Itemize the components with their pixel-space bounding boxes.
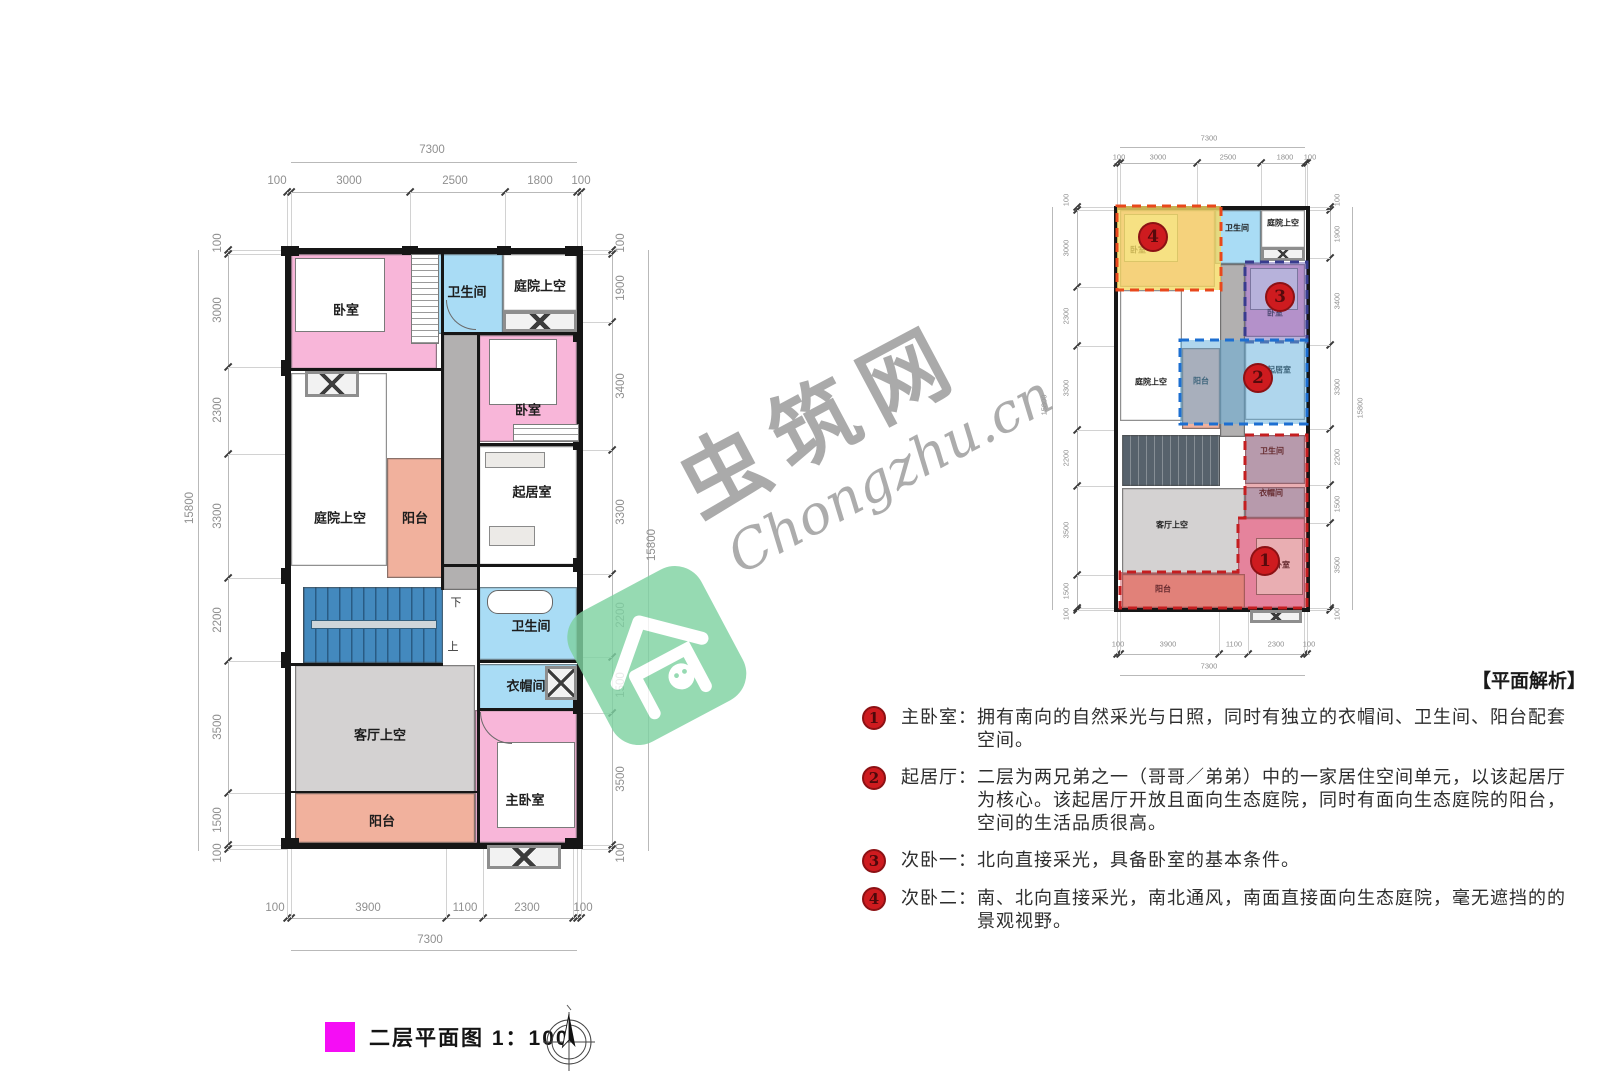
- stair-direction-label: 上: [448, 638, 459, 654]
- analysis-item-text: 次卧二：南、北向直接采光，南北通风，南面直接面向生态庭院，毫无遮挡的的景观视野。: [901, 887, 1582, 933]
- stair-direction-label: 下: [451, 594, 462, 610]
- dimension-line: [291, 950, 577, 951]
- room-corridor: [443, 334, 479, 590]
- extension-line: [1248, 610, 1249, 654]
- room-m-courtyard-n: [1261, 210, 1305, 248]
- dimension-label: 1900: [1333, 226, 1342, 243]
- wall-segment: [281, 652, 291, 668]
- extension-line: [1117, 163, 1118, 207]
- dimension-label: 3300: [212, 503, 224, 529]
- dimension-label: 2300: [1062, 308, 1071, 325]
- dimension-label: 2200: [1333, 449, 1342, 466]
- room-m-courtyard-w: [1120, 290, 1182, 421]
- dimension-line: [228, 250, 229, 851]
- dimension-label: 1500: [1062, 583, 1071, 600]
- analysis-item-number-badge: 4: [862, 887, 886, 911]
- wall-segment: [479, 443, 583, 446]
- zone-marker-1: 1: [1250, 546, 1280, 576]
- wall-segment: [443, 332, 583, 335]
- dimension-label: 7300: [417, 934, 443, 946]
- legend-color-swatch: [325, 1022, 355, 1052]
- extension-line: [291, 192, 292, 250]
- wall-segment: [479, 660, 583, 663]
- dimension-label: 7300: [419, 144, 445, 156]
- room-courtyard-w: [291, 373, 387, 566]
- room-label-m-living-above: 客厅上空: [1156, 520, 1188, 531]
- dimension-line: [1352, 207, 1353, 610]
- dimension-label: 100: [212, 843, 224, 862]
- tub-symbol: [487, 590, 553, 614]
- dimension-label: 100: [615, 843, 627, 862]
- dimension-line: [1114, 654, 1310, 655]
- dimension-line: [1330, 207, 1331, 610]
- dimension-line: [612, 250, 613, 851]
- dimension-label: 100: [1112, 640, 1125, 649]
- wall-segment: [479, 708, 583, 711]
- wall-segment: [565, 246, 583, 256]
- room-label-m-bath-n: 卫生间: [1225, 223, 1249, 234]
- dimension-label: 3500: [212, 714, 224, 740]
- watermark-brand-en: Chongzhu.cn: [708, 363, 1063, 591]
- dimension-label: 3400: [1333, 293, 1342, 310]
- extension-line: [1261, 163, 1262, 207]
- legend-plan-name: 二层平面图: [369, 1027, 484, 1050]
- room-m-living-above: [1122, 488, 1245, 574]
- extension-line: [1219, 610, 1220, 654]
- analysis-item-text: 起居厅：二层为两兄弟之一（哥哥／弟弟）中的一家居住空间单元，以该起居厅为核心。该…: [901, 766, 1582, 835]
- dimension-label: 100: [615, 233, 627, 252]
- dimension-label: 3000: [1150, 153, 1167, 162]
- dimension-label: 3500: [1062, 522, 1071, 539]
- analysis-item-3: 3次卧一：北向直接采光，具备卧室的基本条件。: [862, 849, 1582, 873]
- dimension-label: 1500: [615, 672, 627, 698]
- extension-line: [581, 713, 612, 714]
- room-label-balcony-s: 阳台: [369, 811, 395, 830]
- extension-line: [1077, 608, 1114, 609]
- extension-line: [287, 192, 288, 250]
- analysis-header: 【平面解析】: [1472, 666, 1600, 693]
- room-label-m-balcony-middle: 阳台: [1193, 376, 1209, 387]
- dimension-label: 3300: [1062, 380, 1071, 397]
- extension-line: [228, 367, 287, 368]
- dimension-label: 100: [267, 175, 286, 187]
- room-m-corridor: [1220, 264, 1245, 437]
- xbox-symbol: [487, 845, 561, 869]
- hatch-symbol: [513, 424, 579, 442]
- extension-line: [1077, 346, 1114, 347]
- dimension-label: 3000: [336, 175, 362, 187]
- xbox-symbol: [1250, 610, 1302, 623]
- dimension-line: [1077, 207, 1078, 610]
- watermark-brand-cn: 虫筑网: [665, 281, 1032, 534]
- dimension-label: 1100: [453, 902, 478, 914]
- extension-line: [581, 250, 612, 251]
- analysis-item-number-badge: 3: [862, 849, 886, 873]
- room-label-bath-s: 卫生间: [511, 616, 550, 635]
- room-label-m-courtyard-n: 庭院上空: [1267, 218, 1299, 229]
- analysis-item-number-badge: 1: [862, 706, 886, 730]
- zone-marker-4: 4: [1138, 222, 1168, 252]
- extension-line: [581, 254, 612, 255]
- dimension-label: 100: [212, 233, 224, 252]
- dimension-label: 15800: [1040, 395, 1049, 416]
- xbox-symbol: [1261, 247, 1305, 261]
- dimension-label: 3000: [1062, 240, 1071, 257]
- extension-line: [577, 192, 578, 250]
- dimension-label: 2300: [212, 397, 224, 423]
- dimension-label: 100: [1304, 153, 1317, 162]
- dimension-line: [291, 162, 577, 163]
- dimension-label: 2500: [442, 175, 468, 187]
- dimension-label: 100: [265, 902, 284, 914]
- room-m-balcony-s: [1122, 574, 1245, 608]
- extension-line: [1305, 163, 1306, 207]
- room-m-balcony-middle: [1182, 348, 1220, 429]
- room-label-cloakroom: 衣帽间: [506, 676, 545, 695]
- xbox-symbol: [545, 666, 577, 700]
- dimension-label: 3400: [615, 373, 627, 399]
- analysis-item-text: 次卧一：北向直接采光，具备卧室的基本条件。: [901, 849, 1582, 873]
- dimension-label: 2500: [1220, 153, 1237, 162]
- wall-segment: [281, 360, 291, 376]
- room-m-stairs: [1122, 435, 1220, 486]
- extension-line: [287, 849, 288, 918]
- dimension-label: 15800: [184, 492, 196, 524]
- dimension-label: 1500: [212, 807, 224, 833]
- extension-line: [1197, 163, 1198, 207]
- wall-segment: [281, 568, 291, 584]
- extension-line: [228, 454, 287, 455]
- wall-segment: [291, 791, 477, 793]
- dimension-label: 100: [1333, 608, 1342, 621]
- extension-line: [228, 793, 287, 794]
- wall-segment: [443, 564, 583, 567]
- sofa-symbol: [489, 526, 535, 546]
- dimension-label: 2200: [212, 607, 224, 633]
- rail-symbol: [311, 620, 437, 629]
- room-label-master-bedroom: 主卧室: [505, 790, 544, 809]
- dimension-label: 1900: [615, 275, 627, 301]
- room-label-balcony-middle: 阳台: [402, 508, 428, 527]
- dimension-label: 100: [573, 902, 592, 914]
- room-label-courtyard-w: 庭院上空: [314, 508, 366, 527]
- wall-segment: [291, 663, 443, 666]
- room-label-m-bath-s: 卫生间: [1260, 446, 1284, 457]
- dimension-label: 1500: [1333, 496, 1342, 513]
- room-label-bedroom-nw: 卧室: [333, 300, 359, 319]
- room-label-m-balcony-s: 阳台: [1155, 584, 1171, 595]
- extension-line: [1120, 163, 1121, 207]
- room-label-m-courtyard-w: 庭院上空: [1135, 377, 1167, 388]
- dimension-label: 2200: [615, 602, 627, 628]
- wall-segment: [573, 558, 583, 572]
- dimension-label: 2200: [1062, 450, 1071, 467]
- dimension-label: 1100: [1226, 640, 1242, 649]
- extension-line: [1077, 207, 1114, 208]
- bed-symbol: [497, 742, 575, 828]
- zone-marker-2: 2: [1243, 363, 1273, 393]
- wall-segment: [477, 334, 480, 590]
- zone-marker-3: 3: [1265, 282, 1295, 312]
- wall-segment: [1114, 206, 1118, 612]
- extension-line: [228, 845, 287, 846]
- xbox-symbol: [503, 311, 577, 332]
- extension-line: [1077, 575, 1114, 576]
- analysis-item-2: 2起居厅：二层为两兄弟之一（哥哥／弟弟）中的一家居住空间单元，以该起居厅为核心。…: [862, 766, 1582, 835]
- extension-line: [410, 192, 411, 250]
- dimension-label: 3300: [615, 499, 627, 525]
- extension-line: [1310, 210, 1330, 211]
- extension-line: [1077, 430, 1114, 431]
- dimension-line: [198, 250, 199, 851]
- extension-line: [228, 661, 287, 662]
- room-label-living-room: 起居室: [512, 482, 551, 501]
- dimension-line: [287, 192, 581, 193]
- room-label-courtyard-n: 庭院上空: [514, 276, 566, 295]
- dimension-label: 100: [1062, 608, 1071, 621]
- room-label-living-above: 客厅上空: [354, 725, 406, 744]
- watermark-text: 虫筑网 Chongzhu.cn: [665, 281, 1063, 591]
- dimension-label: 100: [571, 175, 590, 187]
- dimension-label: 15800: [1356, 398, 1365, 419]
- extension-line: [1307, 163, 1308, 207]
- dimension-label: 3500: [615, 766, 627, 792]
- extension-line: [581, 192, 582, 250]
- wall-segment: [281, 246, 299, 256]
- hatch-symbol: [411, 254, 439, 344]
- dimension-label: 1800: [1277, 153, 1294, 162]
- dimension-label: 100: [1333, 194, 1342, 207]
- extension-line: [1077, 287, 1114, 288]
- dimension-label: 100: [1113, 153, 1126, 162]
- dimension-label: 100: [1303, 640, 1316, 649]
- room-label-bedroom-e: 卧室: [515, 400, 541, 419]
- analysis-item-number-badge: 2: [862, 766, 886, 790]
- dimension-line: [287, 918, 581, 919]
- drawing-canvas: 卧室卫生间庭院上空卧室起居室庭院上空阳台卫生间衣帽间客厅上空主卧室阳台下上730…: [0, 0, 1600, 1077]
- extension-line: [228, 578, 287, 579]
- wall-segment: [497, 246, 511, 255]
- extension-line: [228, 849, 287, 850]
- extension-line: [1310, 523, 1330, 524]
- analysis-item-1: 1主卧室：拥有南向的自然采光与日照，同时有独立的衣帽间、卫生间、阳台配套空间。: [862, 706, 1582, 752]
- dimension-line: [1120, 147, 1305, 148]
- analysis-item-text: 主卧室：拥有南向的自然采光与日照，同时有独立的衣帽间、卫生间、阳台配套空间。: [901, 706, 1582, 752]
- extension-line: [1310, 207, 1330, 208]
- extension-line: [1310, 258, 1330, 259]
- extension-line: [291, 849, 292, 918]
- extension-line: [581, 574, 612, 575]
- dimension-label: 15800: [646, 529, 658, 561]
- extension-line: [1310, 485, 1330, 486]
- extension-line: [581, 657, 612, 658]
- dimension-label: 2300: [514, 902, 540, 914]
- extension-line: [1310, 429, 1330, 430]
- extension-line: [1077, 210, 1114, 211]
- wall-segment: [565, 838, 583, 849]
- chongzhu-house-logo-icon: [554, 553, 760, 759]
- analysis-item-4: 4次卧二：南、北向直接采光，南北通风，南面直接面向生态庭院，毫无遮挡的的景观视野…: [862, 887, 1582, 933]
- dimension-line: [1052, 207, 1053, 610]
- dimension-label: 3000: [212, 297, 224, 323]
- extension-line: [1077, 610, 1114, 611]
- bed-symbol: [295, 258, 385, 332]
- wall-segment: [1114, 206, 1310, 210]
- wall-segment: [1306, 206, 1310, 612]
- wall-segment: [285, 248, 291, 849]
- room-m-bath-s: [1245, 435, 1305, 484]
- dimension-label: 100: [1062, 194, 1071, 207]
- bed-symbol: [489, 339, 557, 405]
- dimension-label: 7300: [1201, 134, 1218, 143]
- extension-line: [581, 322, 612, 323]
- legend: 二层平面图 1：100: [325, 1022, 570, 1052]
- extension-line: [228, 254, 287, 255]
- extension-line: [581, 845, 612, 846]
- dimension-line: [1120, 675, 1305, 676]
- room-label-m-cloakroom: 衣帽间: [1259, 488, 1283, 499]
- wall-segment: [281, 838, 299, 849]
- extension-line: [228, 250, 287, 251]
- north-arrow-compass-icon: [538, 1002, 600, 1072]
- dimension-label: 3300: [1333, 379, 1342, 396]
- extension-line: [1077, 486, 1114, 487]
- dimension-label: 3500: [1333, 557, 1342, 574]
- dimension-label: 3900: [355, 902, 381, 914]
- dimension-line: [1114, 163, 1310, 164]
- extension-line: [581, 849, 612, 850]
- room-m-bath-n: [1215, 210, 1261, 264]
- dimension-label: 3900: [1160, 640, 1177, 649]
- xbox-symbol: [305, 371, 359, 397]
- extension-line: [1310, 608, 1330, 609]
- dimension-label: 7300: [1201, 662, 1218, 671]
- dimension-label: 2300: [1268, 640, 1285, 649]
- extension-line: [1310, 345, 1330, 346]
- sofa-symbol: [485, 452, 545, 468]
- extension-line: [483, 849, 484, 918]
- extension-line: [446, 849, 447, 918]
- extension-line: [1310, 610, 1330, 611]
- extension-line: [505, 192, 506, 250]
- wall-segment: [573, 700, 583, 714]
- analysis-panel: 1主卧室：拥有南向的自然采光与日照，同时有独立的衣帽间、卫生间、阳台配套空间。2…: [862, 706, 1582, 947]
- dimension-label: 1800: [527, 175, 553, 187]
- wall-segment: [441, 252, 444, 590]
- room-label-bath-n: 卫生间: [447, 282, 486, 301]
- extension-line: [581, 450, 612, 451]
